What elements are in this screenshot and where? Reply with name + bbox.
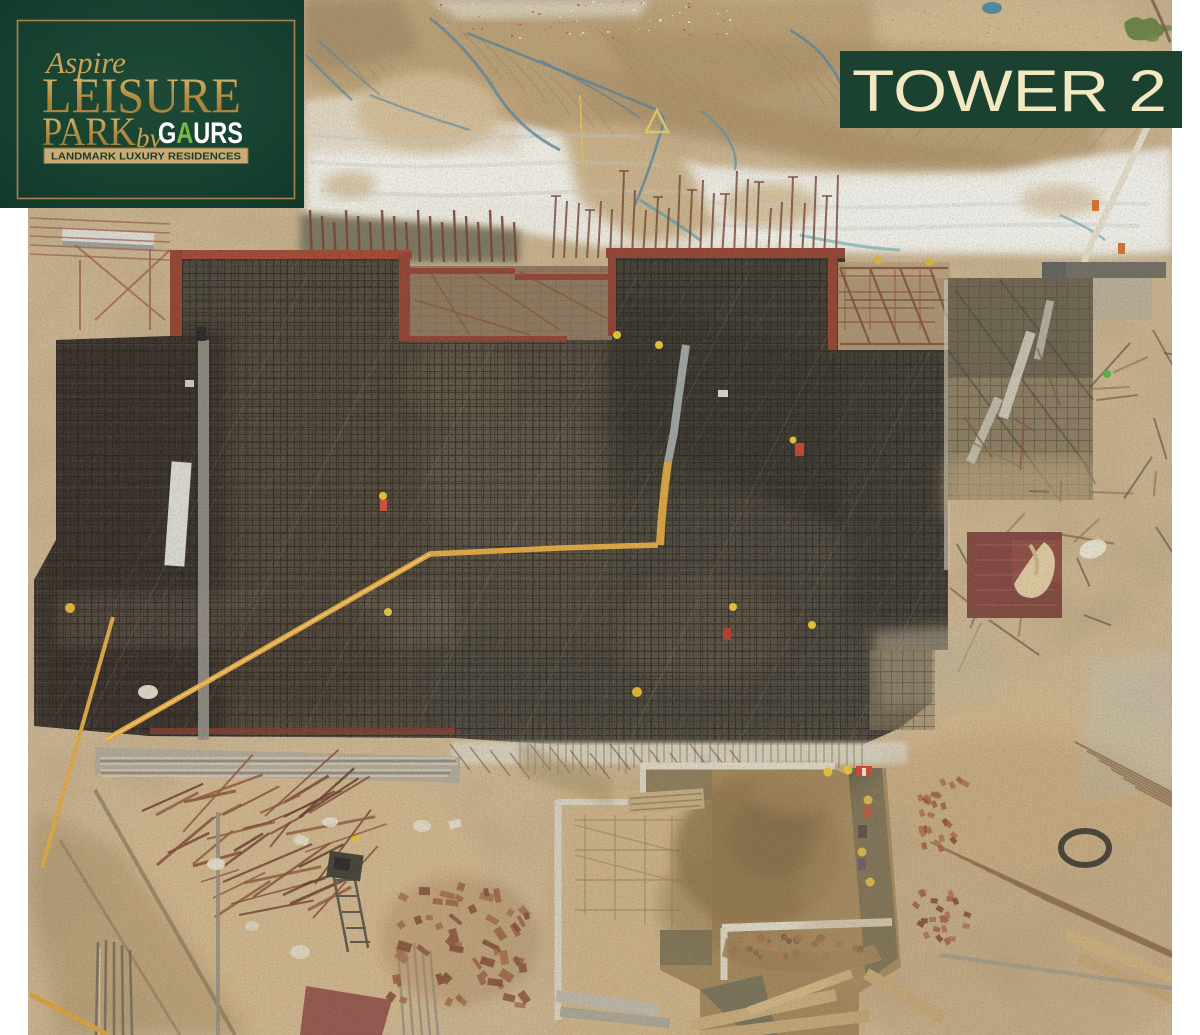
svg-text:TOWER 2: TOWER 2: [852, 59, 1167, 124]
svg-text:PARK: PARK: [42, 109, 136, 154]
svg-text:GAURS: GAURS: [158, 117, 243, 150]
svg-text:LANDMARK LUXURY RESIDENCES: LANDMARK LUXURY RESIDENCES: [51, 152, 241, 163]
